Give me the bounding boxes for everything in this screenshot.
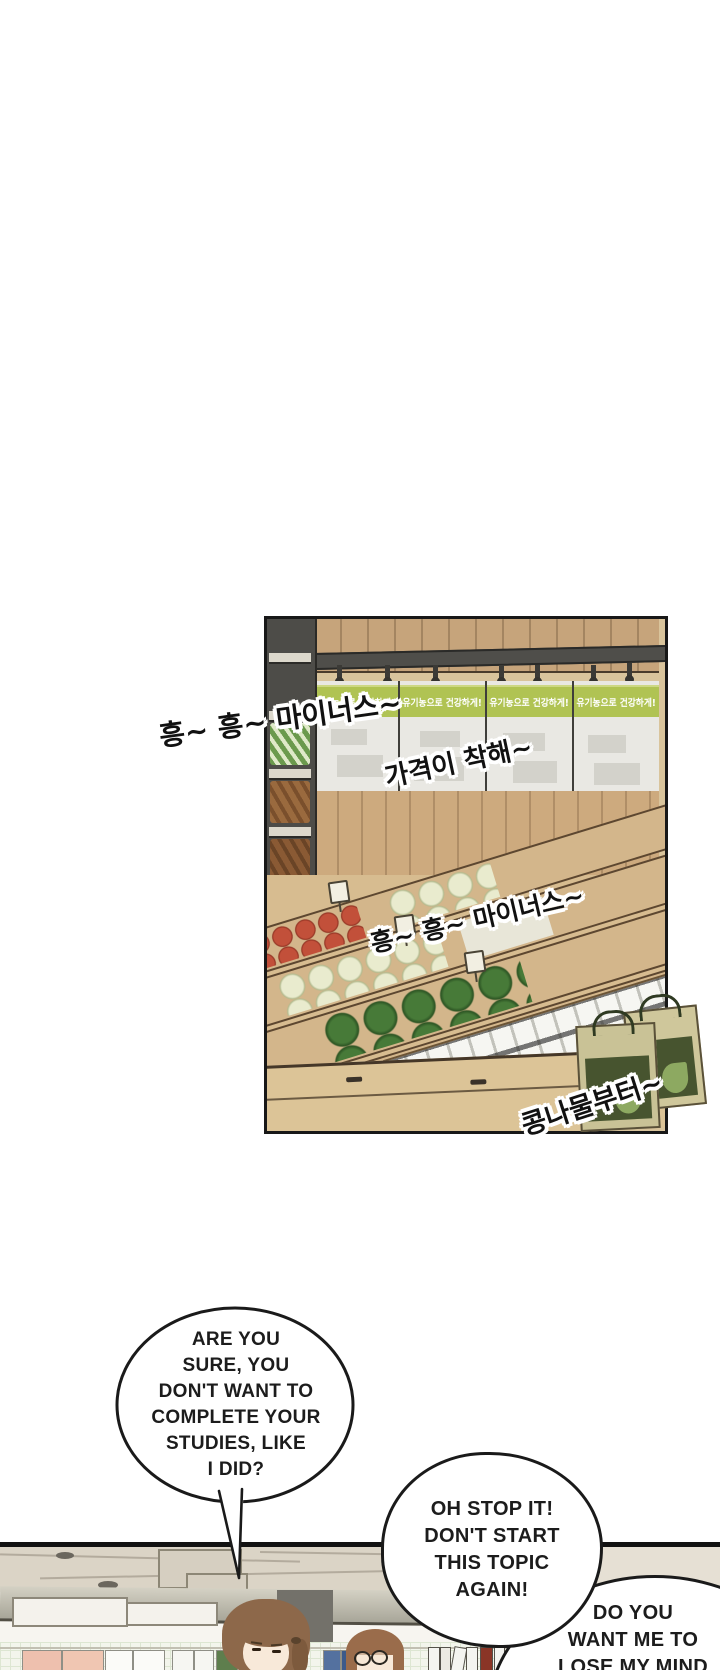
beam-sign — [126, 1602, 218, 1626]
speech-line: COMPLETE YOUR — [120, 1405, 352, 1431]
speech-line: SURE, YOU — [120, 1353, 352, 1379]
speech-line: OH STOP IT! — [424, 1496, 559, 1523]
comic-page: 유기농으로 건강하게! 유기농으로 건강하게! 유기농으로 건강하게! — [0, 0, 720, 1670]
pink-box — [22, 1650, 62, 1670]
banner-text: 유기농으로 건강하게! — [490, 695, 569, 709]
woman-eye — [272, 1650, 281, 1653]
woman-eye — [252, 1648, 261, 1651]
white-box — [172, 1650, 194, 1670]
book-spine — [428, 1647, 440, 1670]
speech-line: AGAIN! — [424, 1577, 559, 1604]
hook-peg — [385, 665, 390, 679]
hook-peg — [499, 665, 504, 679]
cabinet-handle — [346, 1077, 362, 1083]
wall-panel: 유기농으로 건강하게! — [574, 681, 659, 791]
organic-banner: 유기농으로 건강하게! — [400, 685, 485, 717]
speech-line: ARE YOU — [120, 1327, 352, 1353]
hook-peg — [627, 663, 632, 677]
book-spine-red — [480, 1647, 493, 1670]
hook-peg — [591, 665, 596, 679]
price-tag — [464, 950, 487, 975]
speech-text-reply: OH STOP IT! DON'T START THIS TOPIC AGAIN… — [424, 1496, 559, 1604]
wall-sign — [588, 735, 626, 753]
hook-peg — [433, 665, 438, 679]
beam-sign — [12, 1597, 128, 1627]
price-tag — [328, 880, 351, 905]
woman-bangs — [239, 1625, 295, 1647]
white-box — [105, 1650, 133, 1670]
organic-banner: 유기농으로 건강하게! — [574, 685, 659, 717]
speech-line: DON'T WANT TO — [120, 1379, 352, 1405]
blue-box — [323, 1650, 341, 1670]
book-spine — [466, 1647, 478, 1670]
wall-sign — [331, 729, 367, 745]
speech-line: STUDIES, LIKE — [120, 1431, 352, 1457]
white-box — [133, 1650, 165, 1670]
pink-box — [62, 1650, 104, 1670]
bread-packs — [270, 781, 310, 823]
white-box — [194, 1650, 214, 1670]
bread-packs — [270, 839, 310, 879]
shelf-bar — [269, 827, 311, 838]
hook-peg — [337, 665, 342, 679]
ceiling-lamp — [56, 1552, 74, 1559]
speech-line: DON'T START — [424, 1523, 559, 1550]
hair-tie — [291, 1637, 301, 1644]
banner-text: 유기농으로 건강하게! — [577, 695, 656, 709]
cabinet-handle — [470, 1079, 486, 1085]
speech-line: I DID? — [120, 1457, 352, 1483]
hook-peg — [535, 665, 540, 679]
speech-line: LOSE MY MIND — [520, 1654, 720, 1670]
wall-sign — [337, 755, 383, 777]
speech-bubble-reply: OH STOP IT! DON'T START THIS TOPIC AGAIN… — [381, 1452, 603, 1648]
book-spine — [440, 1647, 451, 1670]
glasses-lens — [354, 1651, 371, 1666]
wall-sign — [594, 763, 640, 785]
shelf-bar — [269, 653, 311, 664]
banner-text: 유기농으로 건강하게! — [403, 695, 482, 709]
organic-banner: 유기농으로 건강하게! — [487, 685, 572, 717]
speech-text-sister: ARE YOU SURE, YOU DON'T WANT TO COMPLETE… — [120, 1327, 352, 1483]
shelf-bar — [269, 769, 311, 780]
glasses-lens — [371, 1650, 388, 1665]
speech-line: THIS TOPIC — [424, 1550, 559, 1577]
